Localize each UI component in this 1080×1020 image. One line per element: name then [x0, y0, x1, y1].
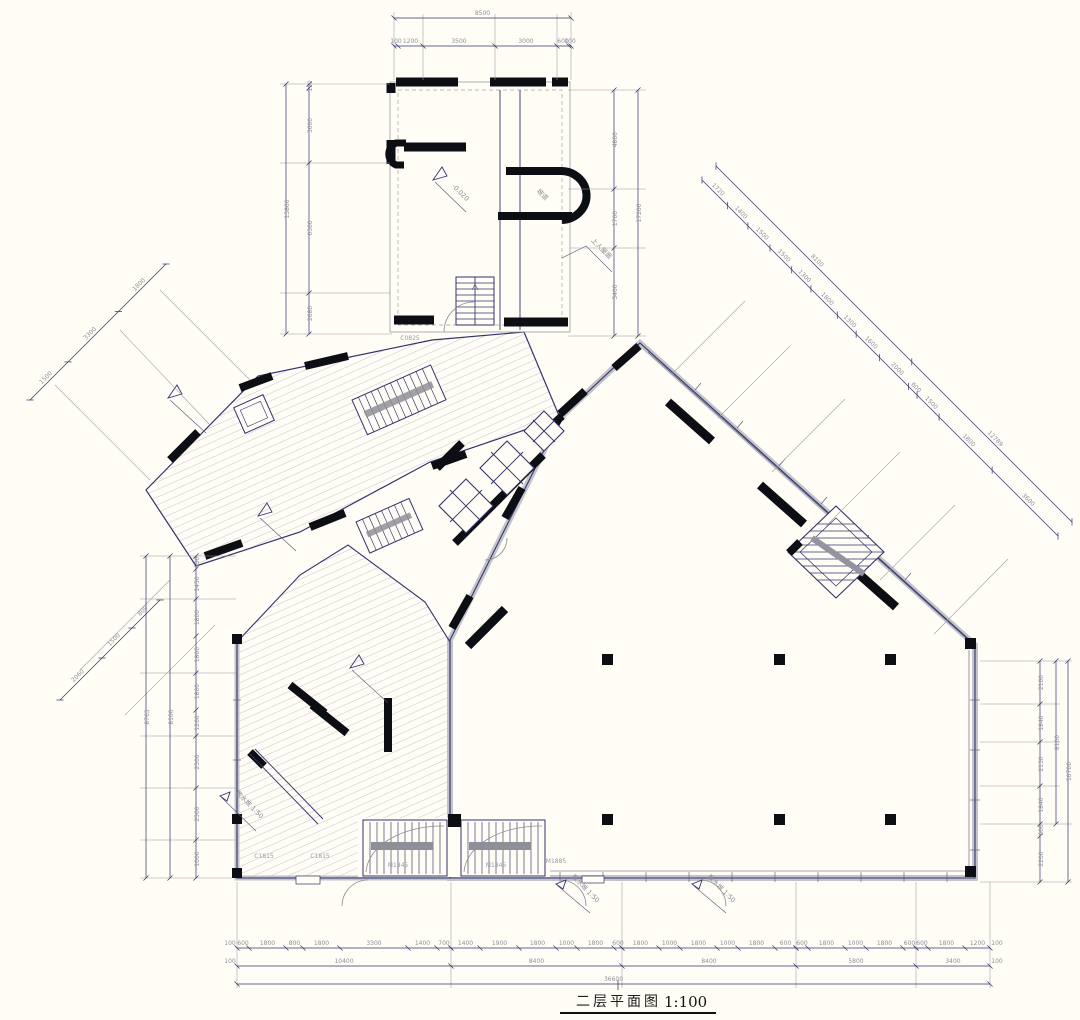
- dimension-value: 2500: [194, 754, 201, 769]
- dimension-value: 600: [237, 940, 249, 947]
- dimension-value: 5800: [848, 958, 863, 965]
- dimension-value: 1800: [749, 940, 764, 947]
- dimension-value: 3600: [307, 118, 314, 133]
- dimension-value: 8100: [1054, 735, 1061, 750]
- door-code: M1885: [546, 858, 567, 865]
- dimension-value: 8100: [168, 709, 175, 724]
- dimension-value: 3300: [82, 326, 98, 342]
- drawing-scale: 1:100: [664, 993, 707, 1011]
- window-code: C1815: [254, 853, 274, 860]
- dimension-value: 1800: [194, 684, 201, 699]
- dimension-value: 1500: [106, 632, 122, 648]
- dimension-value: 800: [289, 940, 301, 947]
- top-wing: 坡道 -0.020: [389, 82, 587, 332]
- dimension-value: 2200: [1038, 851, 1045, 866]
- dimension-value: 1260: [194, 715, 201, 730]
- dimension-value: 1000: [662, 940, 677, 947]
- stair-top-wing: [456, 277, 494, 325]
- dimension-value: 8100: [809, 253, 825, 269]
- dimension-value: 1200: [970, 940, 985, 947]
- dimension-value: 1500: [754, 226, 770, 242]
- window-code: C0825: [400, 335, 420, 342]
- ramp-curved: 坡道: [498, 167, 587, 220]
- margin-dim: 100: [991, 958, 1003, 965]
- dimension-value: 1300: [842, 314, 858, 330]
- dimension-value: 600: [612, 940, 624, 947]
- dimension-value: 2130: [1038, 756, 1045, 771]
- roof-access-label: 上人屋面: [589, 236, 614, 261]
- title-block: 二层平面图 1:100: [560, 980, 716, 1013]
- dimension-value: 3600: [1020, 492, 1036, 508]
- dimension-value: 13860: [284, 199, 291, 218]
- dimension-value: 1500: [923, 395, 939, 411]
- dimension-value: 10400: [334, 958, 353, 965]
- floor-plan-sheet: 坡道 -0.020: [0, 0, 1080, 1020]
- door-code: M1845: [486, 862, 507, 869]
- dimension-value: 36600: [604, 976, 623, 983]
- floor-plan-canvas: 坡道 -0.020: [0, 0, 1080, 1020]
- dimension-value: 1840: [1038, 715, 1045, 730]
- elevator-shaft: [439, 479, 493, 533]
- dimension-value: 1800: [194, 610, 201, 625]
- dimension-value: 1840: [1038, 797, 1045, 812]
- dimension-value: 1800: [530, 940, 545, 947]
- dimension-value: 1720: [710, 182, 726, 198]
- dimension-value: 1800: [877, 940, 892, 947]
- dimension-value: 600: [1038, 824, 1045, 836]
- dimension-value: 8763: [144, 709, 151, 724]
- dimension-value: 600: [796, 940, 808, 947]
- dimension-value: 5400: [612, 284, 619, 299]
- dimension-value: 2060: [70, 668, 86, 684]
- dimension-value: 3500: [451, 38, 466, 45]
- entrance-column: [448, 814, 461, 827]
- dimension-value: 1200: [403, 38, 418, 45]
- dimension-value: 1800: [314, 940, 329, 947]
- dimension-value: 1000: [194, 851, 201, 866]
- dimension-value: 600: [916, 940, 928, 947]
- dimension-value: 8500: [475, 10, 490, 17]
- margin-dim: 100: [224, 940, 236, 947]
- dimension-value: 100: [390, 38, 402, 45]
- dimension-value: 2000: [889, 361, 905, 377]
- dimension-value: 1800: [691, 940, 706, 947]
- dimension-value: 600: [780, 940, 792, 947]
- dimension-value: 3000: [518, 38, 533, 45]
- dimension-value: 10700: [1066, 762, 1073, 781]
- dimension-value: 1800: [819, 940, 834, 947]
- dimension-value: 3300: [366, 940, 381, 947]
- elevation-marker: -0.020: [433, 167, 471, 212]
- dimension-value: 1900: [492, 940, 507, 947]
- margin-dim: 100: [224, 958, 236, 965]
- dimension-value: 1400: [415, 940, 430, 947]
- drawing-title: 二层平面图: [576, 994, 661, 1010]
- dimension-value: 17200: [636, 203, 643, 222]
- dimension-value: 1000: [720, 940, 735, 947]
- dimension-value: 1400: [733, 205, 749, 221]
- ramp-left: [389, 143, 466, 165]
- dimension-value: 2500: [194, 806, 201, 821]
- dimension-value: 1800: [633, 940, 648, 947]
- dimension-value: 600: [909, 381, 922, 394]
- dimension-value: 1450: [194, 576, 201, 591]
- elevation-flag: [168, 385, 182, 398]
- dimension-value: 1500: [38, 370, 54, 386]
- dimension-value: 650: [194, 557, 201, 569]
- dimension-value: 2100: [1038, 675, 1045, 690]
- dimension-value: 4800: [612, 132, 619, 147]
- dimension-value: 1400: [458, 940, 473, 947]
- dimension-value: 1000: [559, 940, 574, 947]
- dimension-value: 1800: [819, 291, 835, 307]
- dimension-value: 100: [307, 80, 314, 92]
- dimension-value: 2680: [307, 306, 314, 321]
- dimension-value: 100: [564, 38, 576, 45]
- dimension-value: 1300: [796, 268, 812, 284]
- dimension-value: 1500: [776, 248, 792, 264]
- margin-dim: 100: [991, 940, 1003, 947]
- dimension-value: 6300: [307, 220, 314, 235]
- wing-outline: [146, 332, 560, 566]
- dimension-value: 1800: [588, 940, 603, 947]
- dimension-value: 8400: [701, 958, 716, 965]
- ramp-label: 坡道: [535, 186, 551, 202]
- dimension-value: 8400: [529, 958, 544, 965]
- dimension-value: 1800: [194, 647, 201, 662]
- dimension-value: 1000: [848, 940, 863, 947]
- dimension-value: 1800: [961, 433, 977, 449]
- stair-wing-lower: [356, 498, 423, 553]
- dimension-value: 800: [136, 604, 149, 617]
- door-code: M1845: [388, 862, 409, 869]
- dimension-value: 700: [438, 940, 450, 947]
- dimension-value: 3400: [945, 958, 960, 965]
- dimension-value: 1700: [612, 211, 619, 226]
- dimension-value: 1800: [131, 277, 147, 293]
- dimension-value: 1800: [939, 940, 954, 947]
- dimension-value: 1600: [863, 335, 879, 351]
- window-code: C1815: [310, 853, 330, 860]
- dimension-value: 1800: [260, 940, 275, 947]
